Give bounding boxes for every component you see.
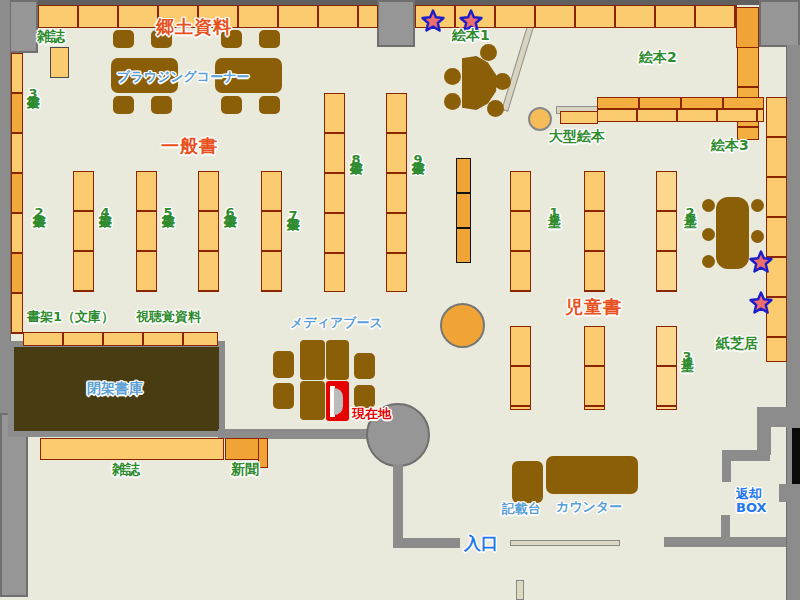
top-pillar: [377, 0, 415, 47]
children-column-1b: [584, 171, 605, 292]
returnbox-wall-stub-up: [721, 515, 730, 539]
label-children-3: 児童3: [680, 347, 694, 365]
fan-table-chair: [494, 73, 511, 90]
label-shelf-8: 書架8: [349, 150, 363, 168]
media-booth-seat: [326, 340, 349, 380]
returnbox-wall-stub-down: [722, 450, 731, 482]
entrance-wall-vertical: [393, 465, 403, 545]
browsing-chair: [113, 30, 134, 48]
browsing-chair: [151, 96, 172, 114]
star-marker: [749, 250, 773, 274]
shelf-column-8: [324, 93, 345, 292]
label-writing-stand: 記載台: [502, 502, 541, 516]
fan-table-chair: [444, 93, 461, 110]
label-picture-books-1: 絵本1: [452, 28, 490, 43]
label-closed-stacks: 閉架書庫: [87, 381, 143, 396]
children-column-2: [656, 171, 677, 292]
left-wall-lower: [0, 413, 28, 597]
label-counter: カウンター: [556, 500, 622, 514]
shelf-column-4: [73, 171, 94, 292]
children-table-chair: [702, 255, 715, 268]
label-picture-books-2: 絵本2: [639, 50, 677, 65]
star-marker: [749, 291, 773, 315]
label-children-books: 児童書: [565, 298, 622, 317]
star-marker: [421, 9, 445, 33]
magazine-shelf-bottom: [40, 438, 224, 460]
round-table: [440, 303, 485, 348]
label-shelf-9: 書架9: [411, 150, 425, 168]
media-booth-seat: [300, 340, 325, 380]
children-column-3a: [510, 326, 531, 410]
label-shelf-5: 書架5: [161, 203, 175, 221]
label-return-box-line2: BOX: [736, 500, 767, 515]
label-large-picture-books: 大型絵本: [549, 129, 605, 144]
counter-desk: [546, 456, 638, 494]
children-column-1a: [510, 171, 531, 292]
narrow-display-shelf: [456, 158, 471, 263]
bunko-av-shelf-row: [23, 332, 218, 346]
library-floor-map: 雑誌 郷土資料 ブラウジングコーナー 一般書 絵本1 絵本2 絵本3 大型絵本 …: [0, 0, 800, 600]
entrance-door: [510, 540, 620, 546]
door-post: [516, 580, 524, 600]
label-shelf-6: 書架6: [223, 203, 237, 221]
ehon2-shelf-end: [560, 111, 598, 124]
label-shelf-2: 書架2: [32, 203, 46, 221]
shelf-column-7: [261, 171, 282, 292]
label-picture-books-3: 絵本3: [711, 138, 749, 153]
writing-stand-desk: [512, 461, 543, 503]
ehon2-shelf-row-lower: [597, 109, 764, 122]
media-booth-seat: [300, 381, 325, 420]
media-booth-chair: [273, 351, 294, 378]
children-column-3c: [656, 326, 677, 410]
media-booth-chair: [354, 353, 375, 379]
top-right-corner-shelf: [736, 7, 759, 48]
label-newspapers: 新聞: [231, 462, 259, 477]
ehon2-shelf-row-upper: [597, 97, 764, 109]
right-wall-shelf: [766, 97, 787, 362]
label-children-1: 児童1: [547, 203, 561, 221]
returnbox-wall-notch: [779, 484, 787, 502]
label-audiovisual: 視聴覚資料: [136, 310, 201, 324]
magazine-rack-top: [50, 47, 69, 78]
fan-table-chair: [480, 44, 497, 61]
label-kamishibai: 紙芝居: [716, 336, 758, 351]
diagonal-partition: [501, 16, 536, 112]
label-magazines-bottom: 雑誌: [112, 462, 140, 477]
label-entrance: 入口: [464, 535, 498, 553]
browsing-chair: [221, 96, 242, 114]
label-local-materials: 郷土資料: [156, 18, 232, 37]
label-shelf-4: 書架4: [98, 203, 112, 221]
fan-table-chair: [444, 68, 461, 85]
shelf-column-6: [198, 171, 219, 292]
children-table-chair: [702, 228, 715, 241]
label-current-location: 現在地: [352, 407, 391, 421]
left-wall-shelf: [11, 53, 23, 334]
entrance-wall-horizontal: [393, 538, 460, 548]
corner-wall-top-right: [759, 0, 800, 47]
children-table-chair: [751, 230, 764, 243]
label-general-books: 一般書: [161, 137, 218, 156]
label-children-2: 児童2: [683, 203, 697, 221]
label-magazines-top: 雑誌: [37, 29, 65, 44]
media-booth-chair: [354, 385, 375, 408]
label-shelf1-bunko: 書架1（文庫）: [27, 310, 114, 324]
browsing-chair: [259, 96, 280, 114]
label-media-booth: メディアブース: [290, 316, 383, 330]
shelf-column-9: [386, 93, 407, 292]
label-shelf-3: 書架3: [26, 84, 40, 102]
children-column-3b: [584, 326, 605, 410]
label-return-box: 返却 BOX: [736, 487, 767, 514]
right-wall-dark-section: [792, 428, 800, 484]
children-table: [716, 197, 749, 269]
fan-table-chair: [487, 100, 504, 117]
label-browsing-corner: ブラウジングコーナー: [117, 70, 249, 84]
media-booth-chair: [273, 383, 294, 409]
children-table-chair: [702, 199, 715, 212]
label-shelf-7: 書架7: [286, 206, 300, 224]
browsing-chair: [259, 30, 280, 48]
right-wall: [786, 45, 800, 600]
browsing-chair: [113, 96, 134, 114]
returnbox-wall-left-upper: [757, 407, 771, 455]
ehon3-wall-shelf: [737, 47, 759, 140]
shelf-column-5: [136, 171, 157, 292]
children-table-chair: [751, 199, 764, 212]
newspaper-shelf-end: [258, 438, 268, 468]
